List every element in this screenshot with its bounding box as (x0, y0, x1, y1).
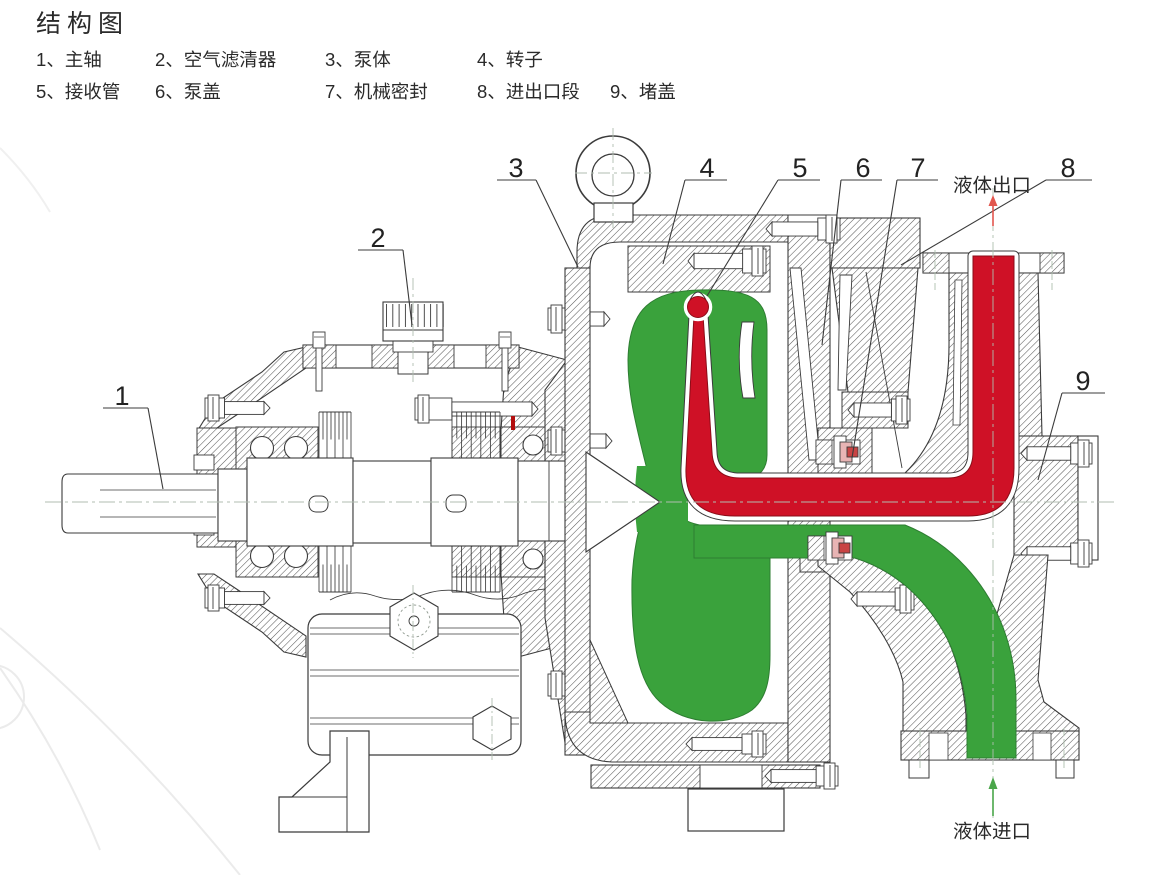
svg-text:7: 7 (325, 81, 335, 102)
svg-text:2: 2 (155, 49, 165, 70)
svg-text:6: 6 (155, 81, 165, 102)
svg-text:8: 8 (1060, 153, 1075, 183)
svg-text:1: 1 (114, 381, 129, 411)
svg-text:2: 2 (370, 223, 385, 253)
svg-text:5: 5 (792, 153, 807, 183)
svg-text:1: 1 (36, 49, 46, 70)
svg-text:8: 8 (477, 81, 487, 102)
svg-text:3: 3 (325, 49, 335, 70)
svg-text:9: 9 (1075, 366, 1090, 396)
svg-text:4: 4 (477, 49, 487, 70)
svg-text:7: 7 (910, 153, 925, 183)
svg-text:4: 4 (699, 153, 714, 183)
svg-text:9: 9 (610, 81, 620, 102)
svg-text:6: 6 (855, 153, 870, 183)
svg-text:5: 5 (36, 81, 46, 102)
svg-text:3: 3 (508, 153, 523, 183)
